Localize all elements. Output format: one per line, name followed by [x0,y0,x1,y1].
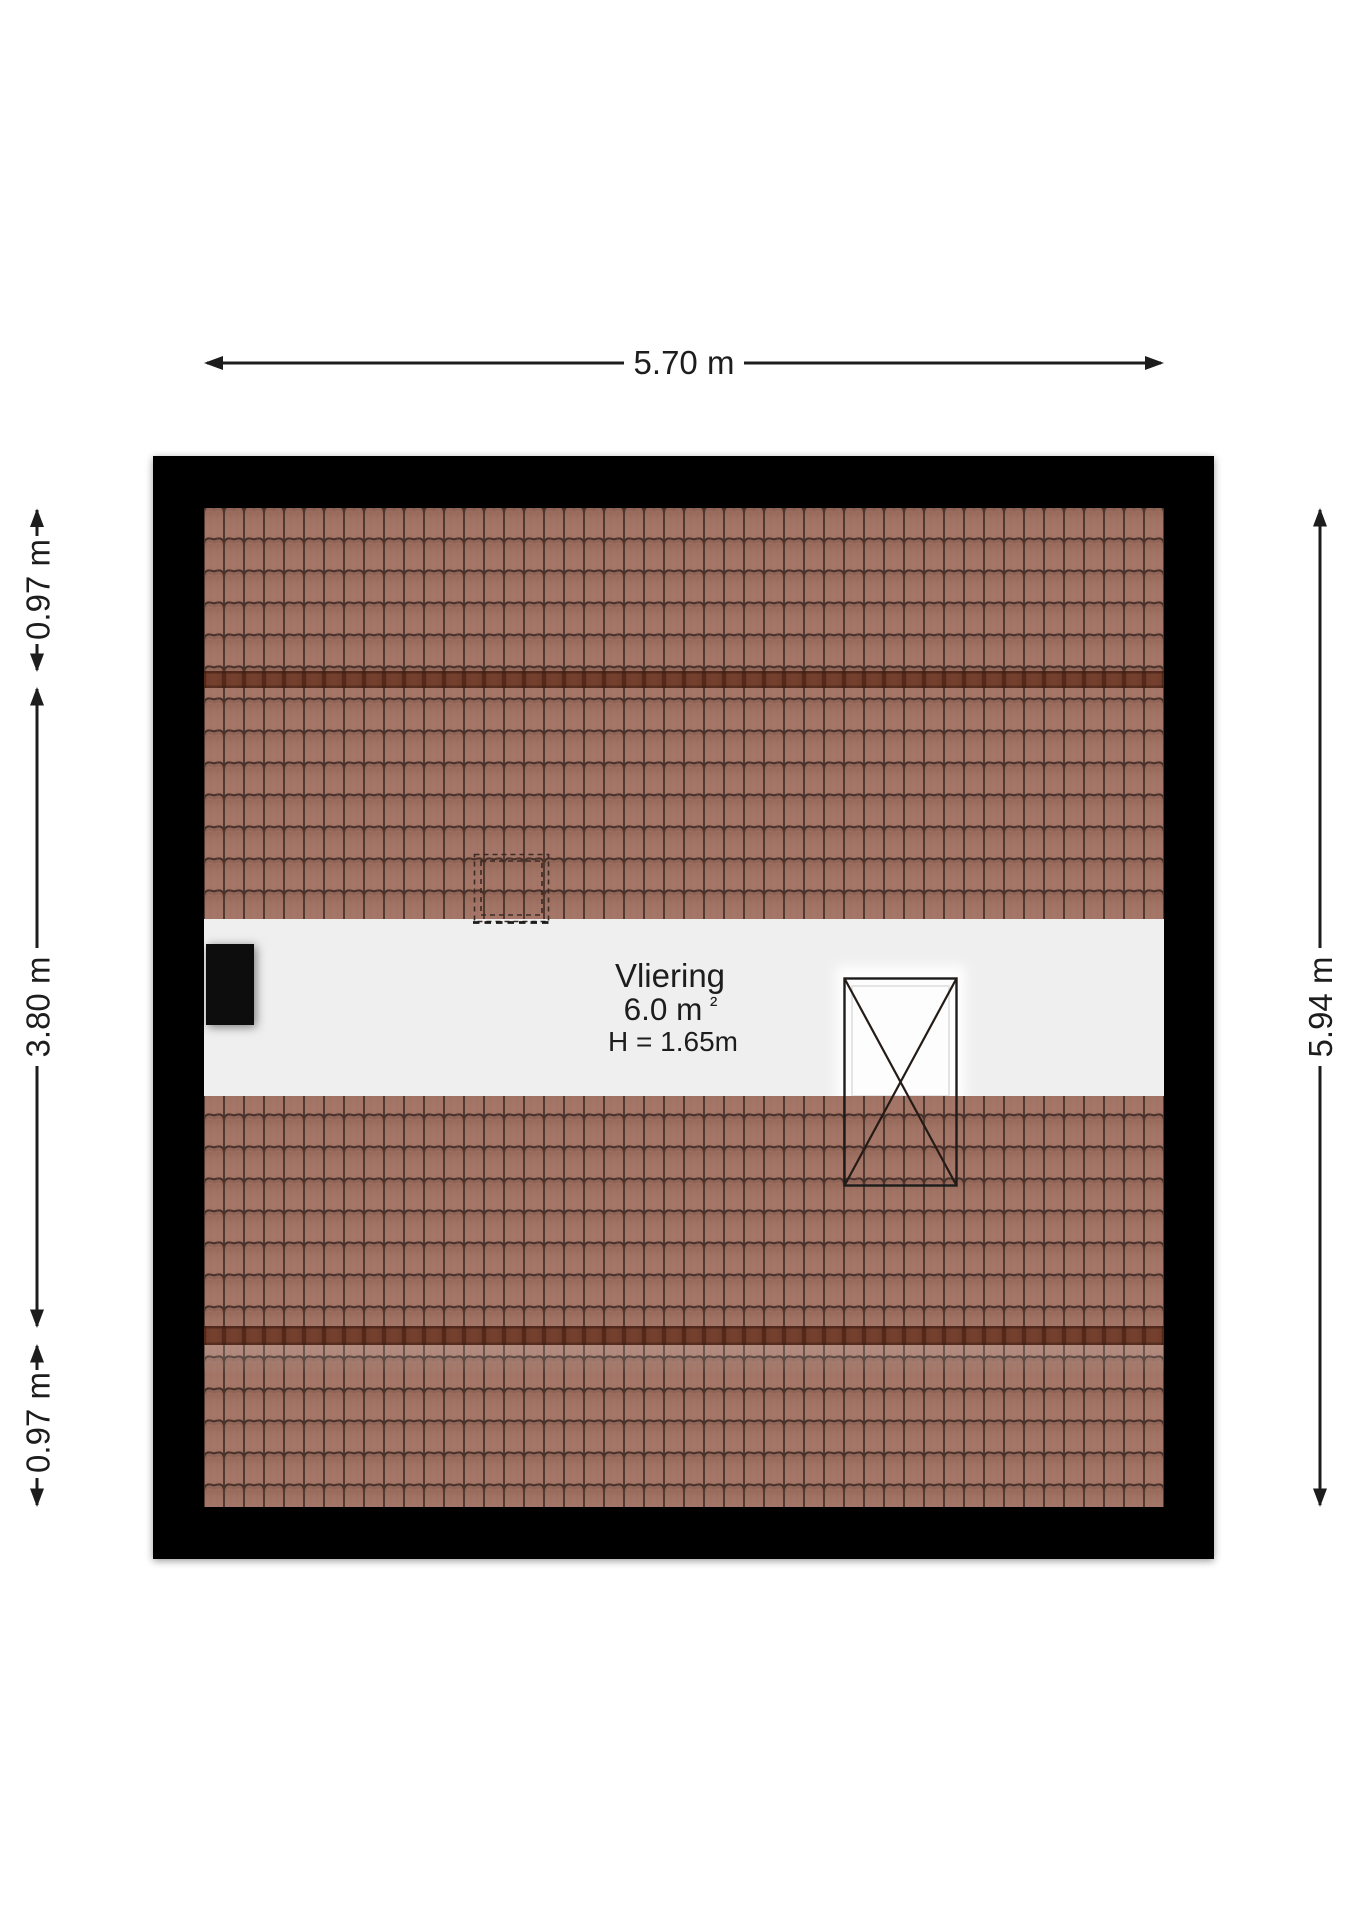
svg-text:Vliering: Vliering [615,957,725,994]
svg-text:5.94 m: 5.94 m [1302,957,1339,1058]
svg-text:5.70 m: 5.70 m [634,344,735,381]
svg-text:0.97 m: 0.97 m [20,539,57,640]
svg-text:H = 1.65m: H = 1.65m [608,1026,738,1057]
svg-text:6.0 m: 6.0 m [624,991,703,1027]
svg-text:3.80 m: 3.80 m [20,957,57,1058]
svg-text:²: ² [710,992,717,1017]
svg-text:0.97 m: 0.97 m [20,1372,57,1473]
